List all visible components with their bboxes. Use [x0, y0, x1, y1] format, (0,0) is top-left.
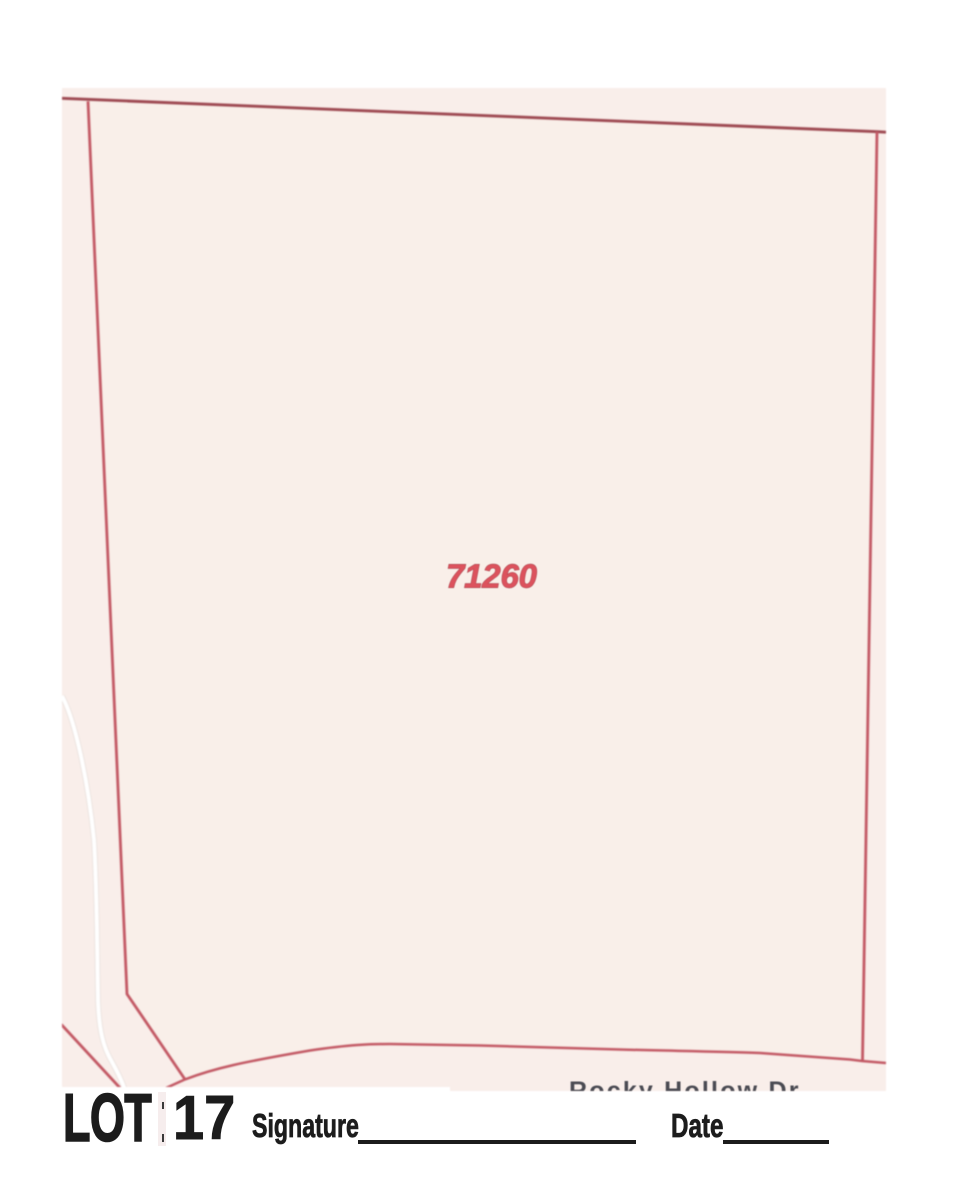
svg-text:71260: 71260	[446, 558, 538, 595]
svg-text:Rocky Hollow Dr: Rocky Hollow Dr	[569, 1077, 801, 1105]
